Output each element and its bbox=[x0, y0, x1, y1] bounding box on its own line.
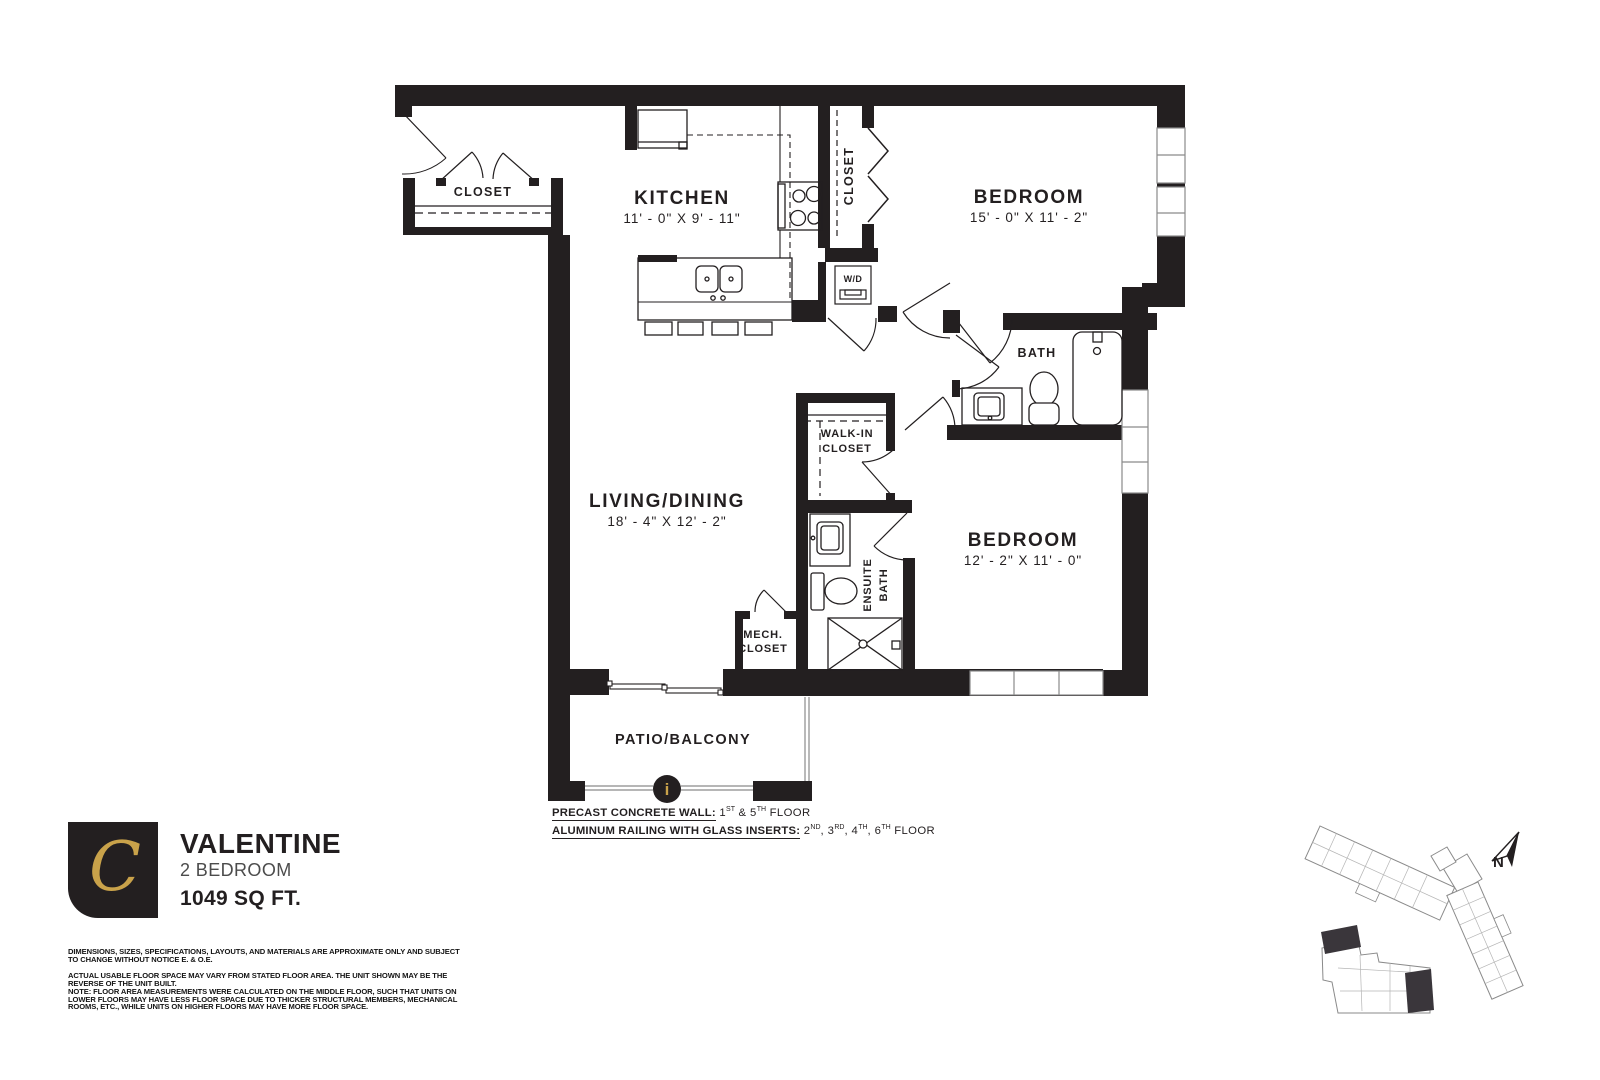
info-icon-glyph: i bbox=[665, 780, 670, 799]
label-bedroom1-closet: CLOSET bbox=[842, 147, 856, 206]
entry-door bbox=[402, 112, 446, 158]
label-kitchen-dims: 11' - 0" X 9' - 11" bbox=[623, 211, 740, 226]
label-bedroom2: BEDROOM bbox=[968, 530, 1078, 551]
bath-toilet bbox=[1030, 372, 1058, 406]
keyplan-wing-north bbox=[1301, 826, 1455, 929]
label-living-dims: 18' - 4" X 12' - 2" bbox=[607, 514, 726, 529]
floorplan-sheet: i CLOSET KITCHEN 11' - 0" X 9' - 11" BED… bbox=[0, 0, 1600, 1080]
keyplan-this-building bbox=[1321, 925, 1434, 1013]
brand-logo-letter: C bbox=[89, 834, 141, 902]
bar-stool bbox=[745, 322, 772, 335]
bifold-door bbox=[868, 128, 888, 174]
note-precast-label: PRECAST CONCRETE WALL: bbox=[552, 807, 716, 821]
label-mech-1: MECH. bbox=[743, 629, 782, 641]
note-railing-label: ALUMINUM RAILING WITH GLASS INSERTS: bbox=[552, 825, 800, 839]
mech-closet-door bbox=[755, 590, 786, 612]
laundry-door bbox=[828, 318, 876, 351]
label-bedroom1: BEDROOM bbox=[974, 187, 1084, 208]
kitchen-island bbox=[638, 258, 792, 320]
note-precast: PRECAST CONCRETE WALL: 1ST & 5TH FLOOR bbox=[552, 806, 935, 819]
label-living: LIVING/DINING bbox=[589, 491, 745, 512]
walkin-door bbox=[862, 450, 893, 497]
label-kitchen: KITCHEN bbox=[634, 188, 730, 209]
floorplan-drawing: i CLOSET KITCHEN 11' - 0" X 9' - 11" BED… bbox=[0, 0, 1600, 1080]
wall-notes: PRECAST CONCRETE WALL: 1ST & 5TH FLOOR A… bbox=[552, 806, 935, 842]
key-plan: N bbox=[1301, 826, 1532, 1013]
entry-closet-door-right bbox=[493, 153, 536, 182]
ensuite-toilet bbox=[811, 573, 824, 610]
north-arrow-icon: N bbox=[1492, 832, 1519, 871]
note-precast-value: 1ST & 5TH FLOOR bbox=[716, 807, 811, 819]
window-bedroom1-b bbox=[1157, 187, 1185, 236]
bar-stool bbox=[712, 322, 738, 335]
label-bedroom1-dims: 15' - 0" X 11' - 2" bbox=[970, 210, 1088, 225]
hall-door bbox=[903, 283, 950, 338]
entry-closet-door-left bbox=[440, 152, 483, 181]
label-bedroom2-dims: 12' - 2" X 11' - 0" bbox=[964, 553, 1082, 568]
sliding-door-panel bbox=[666, 688, 721, 693]
bathtub bbox=[1073, 332, 1122, 425]
unit-name: VALENTINE bbox=[180, 828, 341, 860]
label-bath: BATH bbox=[1018, 346, 1057, 360]
disclaimer-paragraph-2: ACTUAL USABLE FLOOR SPACE MAY VARY FROM … bbox=[68, 972, 460, 1012]
ensuite-door bbox=[874, 513, 907, 560]
disclaimer-paragraph-1: DIMENSIONS, SIZES, SPECIFICATIONS, LAYOU… bbox=[68, 948, 460, 964]
keyplan-wing-east bbox=[1447, 878, 1532, 999]
note-railing: ALUMINUM RAILING WITH GLASS INSERTS: 2ND… bbox=[552, 824, 935, 837]
unit-area: 1049 SQ FT. bbox=[180, 887, 301, 911]
label-ensuite-1: ENSUITE bbox=[862, 558, 874, 611]
bar-stool bbox=[645, 322, 672, 335]
bifold-door bbox=[868, 176, 888, 222]
label-entry-closet: CLOSET bbox=[454, 185, 513, 199]
faucet bbox=[711, 296, 715, 300]
label-walkin-1: WALK-IN bbox=[821, 428, 874, 440]
keyplan-highlight-unit bbox=[1405, 969, 1434, 1013]
note-railing-value: 2ND, 3RD, 4TH, 6TH FLOOR bbox=[800, 825, 935, 837]
window-bedroom2-east bbox=[1122, 390, 1148, 493]
bath-door bbox=[956, 335, 999, 389]
label-walkin-2: CLOSET bbox=[822, 443, 871, 455]
unit-type: 2 BEDROOM bbox=[180, 860, 292, 881]
bar-stool bbox=[678, 322, 703, 335]
kitchen-sink bbox=[696, 266, 718, 292]
label-wd: W/D bbox=[844, 274, 863, 284]
label-ensuite-2: BATH bbox=[878, 569, 890, 602]
label-patio: PATIO/BALCONY bbox=[615, 732, 751, 748]
disclaimer: DIMENSIONS, SIZES, SPECIFICATIONS, LAYOU… bbox=[68, 948, 460, 1011]
brand-logo: C bbox=[68, 822, 158, 918]
north-label: N bbox=[1493, 854, 1504, 871]
island-half-wall bbox=[638, 255, 677, 262]
sliding-door-panel bbox=[610, 684, 665, 689]
window-bedroom2-south bbox=[970, 671, 1103, 695]
label-mech-2: CLOSET bbox=[738, 643, 787, 655]
